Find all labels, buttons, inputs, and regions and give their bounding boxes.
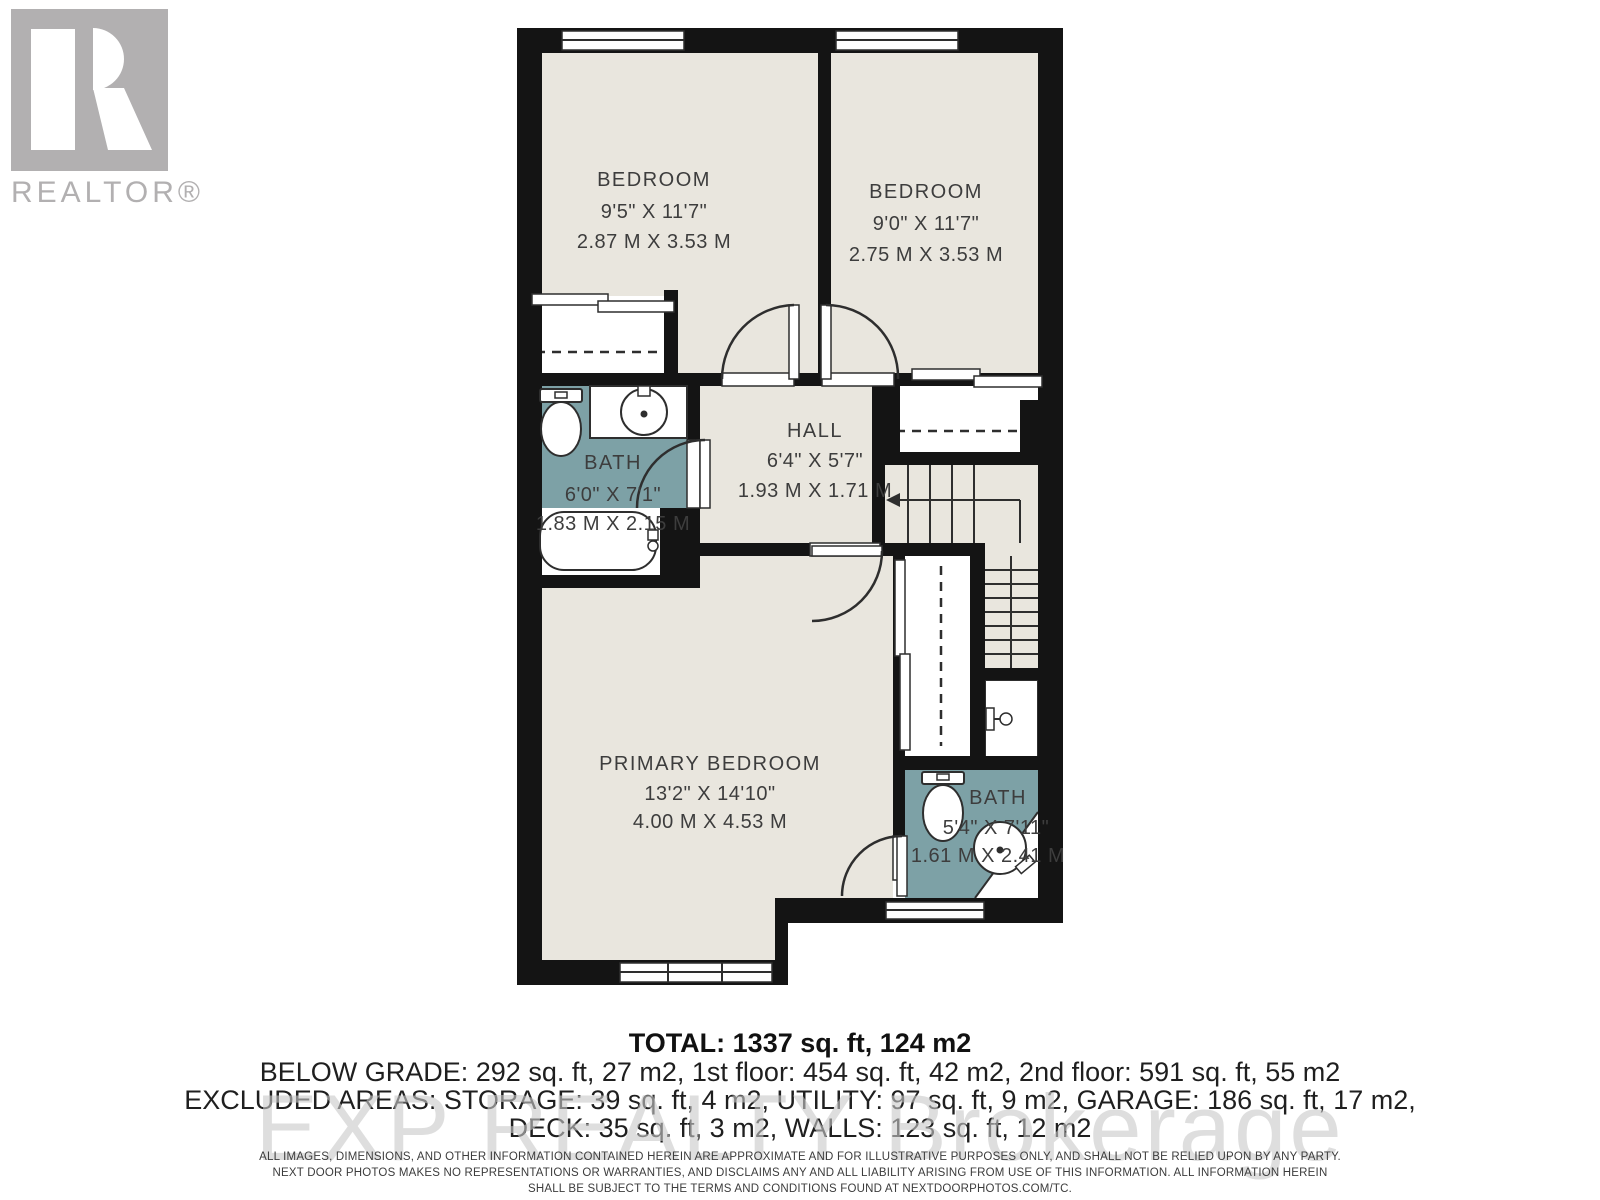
bedroom2-dims-imperial: 9'0" X 11'7" (873, 213, 979, 235)
disclaimer: ALL IMAGES, DIMENSIONS, AND OTHER INFORM… (259, 1151, 1341, 1195)
wall-bath2-top (893, 756, 1038, 770)
disclaimer-line2: NEXT DOOR PHOTOS MAKES NO REPRESENTATION… (273, 1167, 1328, 1179)
wall-hall-right (872, 386, 885, 556)
threshold-bath1-door (687, 440, 700, 508)
bath2-name: BATH (969, 787, 1027, 809)
realtor-wordmark: REALTOR® (11, 176, 204, 209)
wall-bath2-left (893, 770, 905, 836)
wall-closet2-right-fill (1020, 400, 1038, 455)
wall-stairs-shower (985, 668, 1038, 680)
window-primary-bedroom (620, 963, 772, 982)
bedroom2-name: BEDROOM (869, 181, 983, 203)
bath1-dims-imperial: 6'0" X 7'1" (565, 484, 661, 506)
summary-total: TOTAL: 1337 sq. ft, 124 m2 (629, 1028, 972, 1058)
bath2-dims-imperial: 5'4" X 7'11" (943, 817, 1049, 839)
threshold-bedroom1-door (722, 373, 794, 386)
wall-left (517, 28, 542, 985)
bath1-name: BATH (584, 452, 642, 474)
threshold-bedroom2-door (822, 373, 894, 386)
vanity-sink-bath1 (590, 386, 687, 438)
wall-hall-bottom-right (880, 543, 985, 556)
primary-bedroom-name: PRIMARY BEDROOM (599, 753, 821, 775)
bedroom2-dims-metric: 2.75 M X 3.53 M (849, 244, 1003, 266)
hall-name: HALL (787, 420, 843, 442)
hall-dims-imperial: 6'4" X 5'7" (767, 450, 863, 472)
disclaimer-line1: ALL IMAGES, DIMENSIONS, AND OTHER INFORM… (259, 1151, 1341, 1163)
wall-right (1038, 28, 1063, 923)
hall-closet-floor (890, 408, 1023, 455)
bedroom1-dims-metric: 2.87 M X 3.53 M (577, 231, 731, 253)
bedroom1-name: BEDROOM (597, 169, 711, 191)
hall-dims-metric: 1.93 M X 1.71 M (738, 480, 892, 502)
floor-plan-svg: REALTOR® (0, 0, 1600, 1200)
window-bath2 (886, 902, 984, 919)
window-bedroom1 (562, 31, 684, 50)
wall-walkin-stairs (970, 543, 985, 770)
floor-plan-page: REALTOR® (0, 0, 1600, 1200)
brokerage-watermark: EXP REALTY Brokerage (255, 1075, 1344, 1180)
bedroom1-dims-imperial: 9'5" X 11'7" (601, 201, 707, 223)
toilet-bath1 (540, 389, 582, 456)
primary-bedroom-dims-metric: 4.00 M X 4.53 M (633, 811, 787, 833)
window-bedroom2 (836, 31, 958, 50)
wall-hall-bottom-left (687, 543, 812, 556)
walkin-closet-floor (905, 556, 970, 756)
wall-bath1-right-upper (687, 386, 700, 440)
realtor-logo: REALTOR® (11, 9, 204, 209)
disclaimer-line3: SHALL BE SUBJECT TO THE TERMS AND CONDIT… (528, 1183, 1072, 1195)
bath2-dims-metric: 1.61 M X 2.41 M (911, 845, 1065, 867)
primary-bedroom-dims-imperial: 13'2" X 14'10" (644, 783, 775, 805)
wall-tub-bottom (517, 575, 687, 588)
bath1-dims-metric: 1.83 M X 2.15 M (536, 513, 690, 535)
